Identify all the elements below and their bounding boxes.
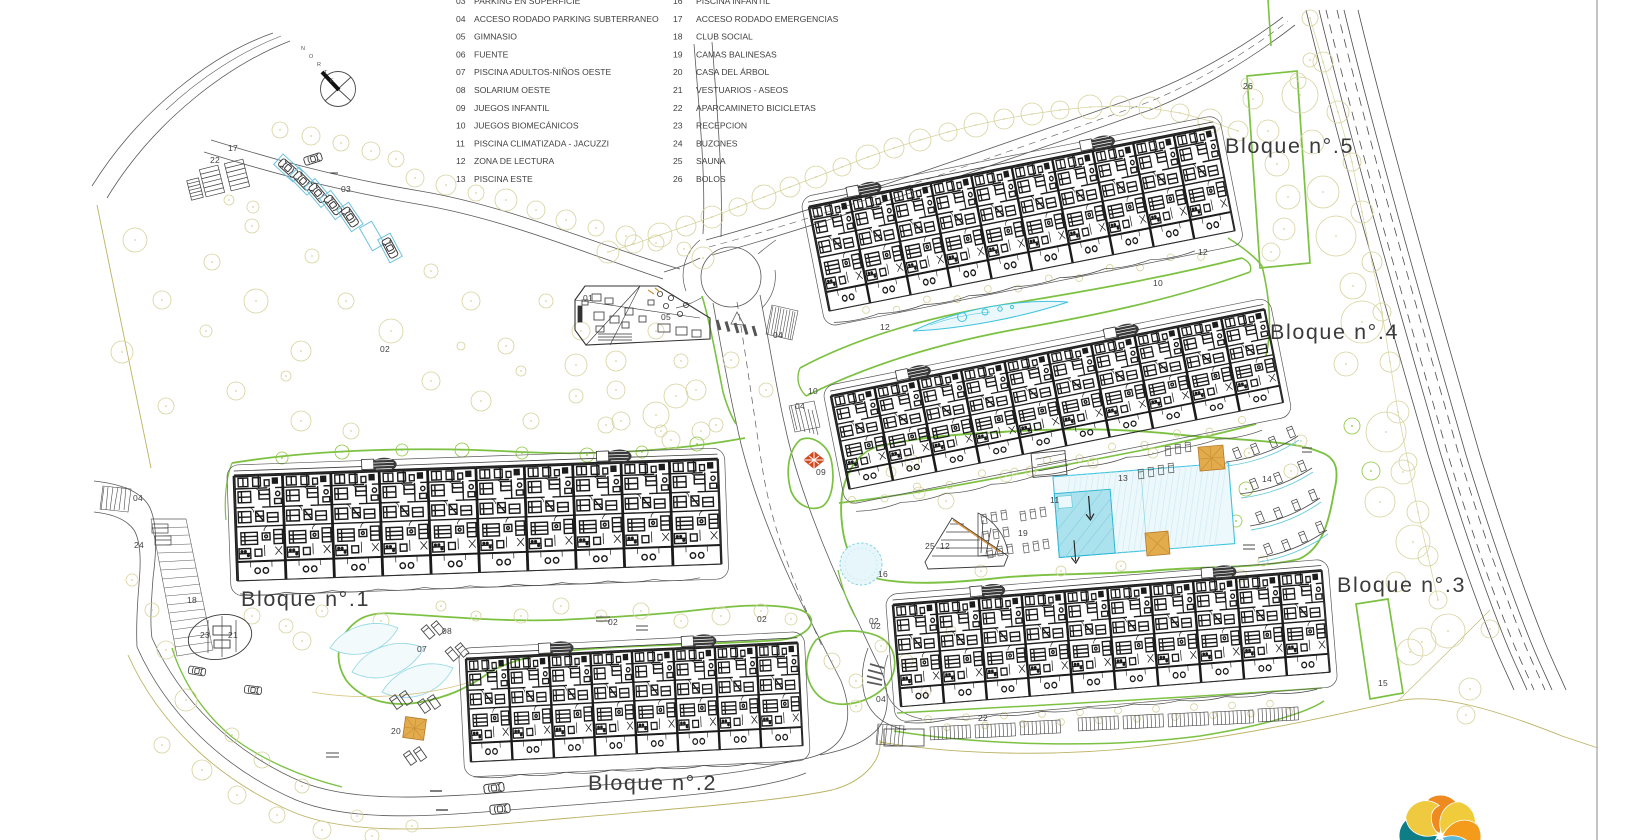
svg-text:24: 24 — [134, 540, 144, 550]
svg-text:04: 04 — [133, 493, 143, 503]
svg-text:PARKING EN SUPERFICIE: PARKING EN SUPERFICIE — [474, 0, 581, 6]
svg-text:13: 13 — [456, 174, 466, 184]
svg-text:10: 10 — [1153, 278, 1163, 288]
svg-text:R: R — [317, 62, 321, 68]
svg-text:22: 22 — [210, 155, 220, 165]
svg-text:Bloque n°.5: Bloque n°.5 — [1225, 134, 1354, 158]
svg-text:10: 10 — [456, 121, 466, 131]
svg-text:23: 23 — [200, 630, 210, 640]
svg-text:22: 22 — [978, 713, 988, 723]
svg-text:02: 02 — [869, 616, 879, 626]
svg-text:16: 16 — [878, 569, 888, 579]
svg-text:07: 07 — [456, 67, 466, 77]
svg-text:01: 01 — [583, 293, 593, 303]
svg-text:18: 18 — [187, 595, 197, 605]
svg-text:14: 14 — [1262, 474, 1272, 484]
svg-text:FUENTE: FUENTE — [474, 49, 509, 59]
svg-text:08: 08 — [442, 626, 452, 636]
svg-text:05: 05 — [661, 312, 671, 322]
svg-text:T: T — [324, 70, 328, 76]
svg-text:02: 02 — [757, 614, 767, 624]
svg-text:Bloque n°.3: Bloque n°.3 — [1337, 573, 1466, 597]
svg-text:PISCINA CLIMATIZADA - JACUZZI: PISCINA CLIMATIZADA - JACUZZI — [474, 138, 609, 148]
svg-text:04: 04 — [456, 14, 466, 24]
svg-text:06: 06 — [456, 49, 466, 59]
svg-text:26: 26 — [673, 174, 683, 184]
svg-text:BUZONES: BUZONES — [696, 138, 738, 148]
svg-text:JUEGOS INFANTIL: JUEGOS INFANTIL — [474, 103, 550, 113]
svg-text:ACCESO RODADO PARKING SUBTERRA: ACCESO RODADO PARKING SUBTERRANEO — [474, 14, 659, 24]
svg-text:VESTUARIOS - ASEOS: VESTUARIOS - ASEOS — [696, 85, 788, 95]
svg-text:12: 12 — [456, 156, 466, 166]
svg-text:08: 08 — [456, 85, 466, 95]
svg-text:12: 12 — [880, 322, 890, 332]
svg-text:PISCINA ESTE: PISCINA ESTE — [474, 174, 533, 184]
svg-text:CLUB SOCIAL: CLUB SOCIAL — [696, 32, 753, 42]
svg-text:RECEPCION: RECEPCION — [696, 121, 747, 131]
svg-text:O: O — [309, 54, 314, 60]
svg-text:SOLARIUM OESTE: SOLARIUM OESTE — [474, 85, 551, 95]
svg-text:07: 07 — [417, 644, 427, 654]
svg-text:09: 09 — [816, 467, 826, 477]
svg-text:CAMAS BALINESAS: CAMAS BALINESAS — [696, 49, 777, 59]
svg-text:PISCINA INFANTIL: PISCINA INFANTIL — [696, 0, 770, 6]
svg-text:24: 24 — [673, 138, 683, 148]
svg-text:12: 12 — [940, 541, 950, 551]
svg-text:SAUNA: SAUNA — [696, 156, 726, 166]
svg-text:GIMNASIO: GIMNASIO — [474, 32, 517, 42]
svg-text:12: 12 — [1198, 247, 1208, 257]
svg-text:22: 22 — [673, 103, 683, 113]
svg-text:21: 21 — [228, 630, 238, 640]
svg-text:17: 17 — [228, 143, 238, 153]
svg-text:ZONA DE LECTURA: ZONA DE LECTURA — [474, 156, 554, 166]
svg-text:02: 02 — [608, 617, 618, 627]
svg-text:26: 26 — [1243, 81, 1253, 91]
svg-text:11: 11 — [1050, 495, 1059, 505]
svg-text:N: N — [301, 46, 305, 52]
svg-text:19: 19 — [1018, 528, 1028, 538]
svg-text:CASA DEL ÁRBOL: CASA DEL ÁRBOL — [696, 67, 769, 77]
svg-text:04: 04 — [773, 330, 783, 340]
svg-text:19: 19 — [673, 49, 683, 59]
svg-text:E: E — [330, 78, 334, 84]
svg-text:05: 05 — [456, 32, 466, 42]
svg-text:09: 09 — [456, 103, 466, 113]
svg-text:20: 20 — [673, 67, 683, 77]
svg-text:PISCINA ADULTOS-NIÑOS OESTE: PISCINA ADULTOS-NIÑOS OESTE — [474, 67, 611, 77]
svg-text:03: 03 — [341, 184, 351, 194]
svg-text:25: 25 — [925, 541, 935, 551]
svg-text:03: 03 — [456, 0, 466, 6]
svg-text:APARCAMINETO BICICLETAS: APARCAMINETO BICICLETAS — [696, 103, 816, 113]
svg-text:17: 17 — [673, 14, 683, 24]
svg-text:16: 16 — [673, 0, 683, 6]
svg-text:02: 02 — [380, 344, 390, 354]
svg-text:13: 13 — [1118, 473, 1128, 483]
svg-text:23: 23 — [673, 121, 683, 131]
svg-text:Bloque n°.1: Bloque n°.1 — [241, 587, 370, 611]
svg-text:JUEGOS BIOMECÁNICOS: JUEGOS BIOMECÁNICOS — [474, 121, 579, 131]
svg-text:Bloque n°.2: Bloque n°.2 — [588, 771, 717, 795]
svg-text:04: 04 — [795, 401, 805, 411]
svg-text:Bloque n°.4: Bloque n°.4 — [1270, 320, 1399, 344]
svg-text:25: 25 — [673, 156, 683, 166]
svg-text:15: 15 — [1378, 678, 1388, 688]
svg-text:ACCESO RODADO EMERGENCIAS: ACCESO RODADO EMERGENCIAS — [696, 14, 839, 24]
svg-text:BOLOS: BOLOS — [696, 174, 726, 184]
svg-text:11: 11 — [456, 138, 465, 148]
svg-text:20: 20 — [391, 726, 401, 736]
svg-text:04: 04 — [876, 694, 886, 704]
svg-text:21: 21 — [673, 85, 683, 95]
svg-text:18: 18 — [673, 32, 683, 42]
svg-text:10: 10 — [808, 386, 818, 396]
